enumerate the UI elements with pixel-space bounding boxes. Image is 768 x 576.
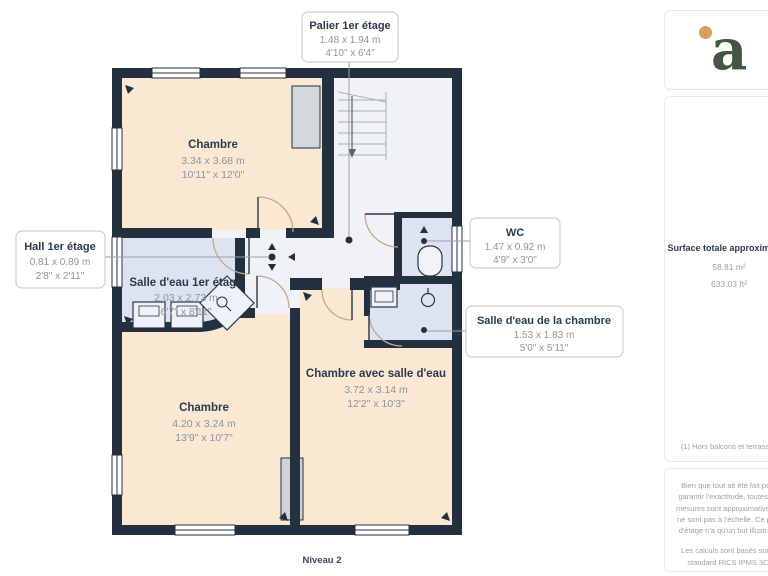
- svg-text:5'0" x 5'11": 5'0" x 5'11": [520, 343, 569, 354]
- surface-title: Surface totale approximative: [665, 243, 768, 253]
- label-chambre-2: Chambre 4.20 x 3.24 m 13'9" x 10'7": [172, 402, 236, 444]
- surface-panel: Surface totale approximative 58.81 m² 63…: [664, 96, 768, 462]
- svg-text:10'11" x 12'0": 10'11" x 12'0": [182, 169, 245, 181]
- callout-palier: Palier 1er étage 1.48 x 1.94 m 4'10" x 6…: [302, 12, 398, 62]
- surface-footnote: (1) Hors balcons et terrasses: [665, 442, 768, 451]
- surface-m2: 58.81 m²: [665, 262, 768, 272]
- label-chambre-1: Chambre 3.34 x 3.68 m 10'11" x 12'0": [181, 139, 245, 181]
- svg-text:Chambre avec salle d'eau: Chambre avec salle d'eau: [306, 368, 446, 380]
- svg-text:13'9" x 10'7": 13'9" x 10'7": [175, 432, 233, 444]
- svg-text:3.34 x 3.68 m: 3.34 x 3.68 m: [181, 155, 245, 167]
- callout-wc: WC 1.47 x 0.92 m 4'9" x 3'0": [470, 218, 560, 268]
- svg-text:1.47 x 0.92 m: 1.47 x 0.92 m: [485, 242, 546, 253]
- bathroom-sink-icon: [371, 287, 397, 307]
- closet: [292, 86, 320, 148]
- callout-hall: Hall 1er étage 0.81 x 0.89 m 2'8" x 2'11…: [16, 231, 105, 288]
- svg-text:4'10" x 6'4": 4'10" x 6'4": [325, 48, 375, 59]
- level-label: Niveau 2: [302, 555, 341, 566]
- svg-text:2.03 x 2.73 m: 2.03 x 2.73 m: [154, 292, 218, 304]
- callout-salle-deau-chambre: Salle d'eau de la chambre 1.53 x 1.83 m …: [466, 306, 623, 357]
- svg-text:2'8" x 2'11": 2'8" x 2'11": [36, 271, 85, 282]
- svg-text:6'7" x 8'11": 6'7" x 8'11": [161, 306, 212, 318]
- svg-text:Hall 1er étage: Hall 1er étage: [24, 241, 96, 253]
- standards-text: Les calculs sont basés sur le standard R…: [672, 545, 768, 568]
- svg-text:4'9" x 3'0": 4'9" x 3'0": [493, 255, 537, 266]
- surface-summary: Surface totale approximative 58.81 m² 63…: [665, 243, 768, 296]
- svg-text:WC: WC: [506, 227, 524, 239]
- floor-plan: Chambre 3.34 x 3.68 m 10'11" x 12'0" Sal…: [0, 0, 660, 576]
- logo-panel: a: [664, 10, 768, 90]
- disclaimer-text: Bien que tout ait été fait pour garantir…: [672, 480, 768, 536]
- agency-logo: a: [711, 11, 747, 89]
- svg-text:Salle d'eau 1er étage: Salle d'eau 1er étage: [129, 277, 242, 289]
- legal-panel: Bien que tout ait été fait pour garantir…: [664, 468, 768, 572]
- svg-text:1.53 x 1.83 m: 1.53 x 1.83 m: [514, 330, 575, 341]
- svg-text:Chambre: Chambre: [179, 402, 229, 414]
- svg-text:Chambre: Chambre: [188, 139, 238, 151]
- surface-ft2: 633.03 ft²: [665, 279, 768, 289]
- svg-text:1.48 x 1.94 m: 1.48 x 1.94 m: [320, 35, 381, 46]
- svg-text:4.20 x 3.24 m: 4.20 x 3.24 m: [172, 418, 236, 430]
- svg-text:12'2" x 10'3": 12'2" x 10'3": [347, 398, 405, 410]
- page: Chambre 3.34 x 3.68 m 10'11" x 12'0" Sal…: [0, 0, 768, 576]
- svg-text:0.81 x 0.89 m: 0.81 x 0.89 m: [30, 257, 91, 268]
- svg-text:Salle d'eau de la chambre: Salle d'eau de la chambre: [477, 315, 611, 327]
- svg-text:Palier 1er étage: Palier 1er étage: [309, 20, 390, 32]
- toilet-icon: [418, 246, 442, 276]
- svg-text:3.72 x 3.14 m: 3.72 x 3.14 m: [344, 384, 408, 396]
